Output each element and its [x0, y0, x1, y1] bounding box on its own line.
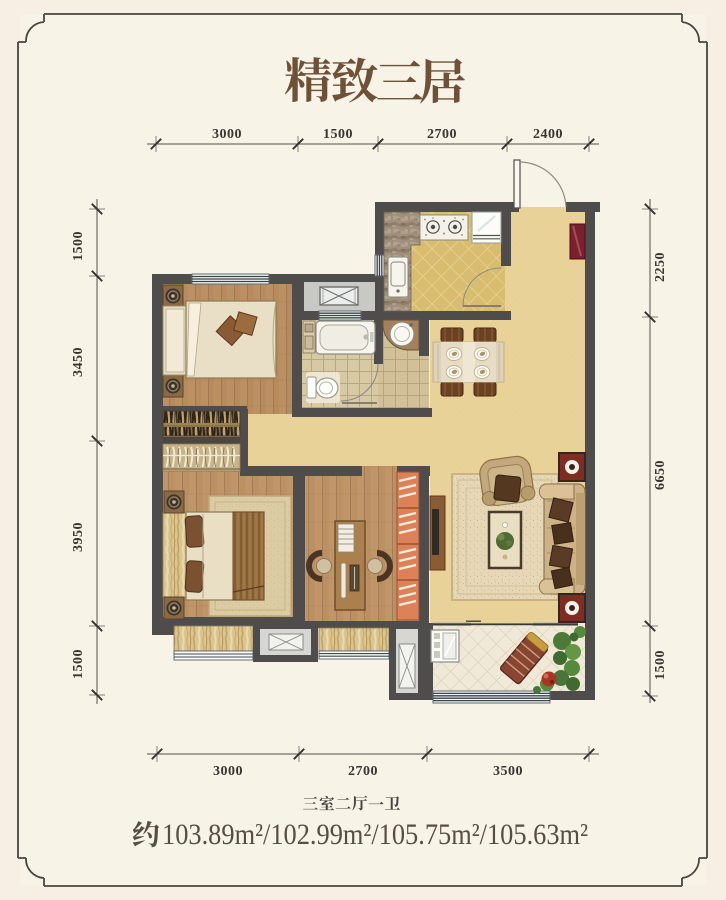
svg-text:1500: 1500 [653, 650, 668, 680]
svg-text:3500: 3500 [493, 764, 523, 779]
svg-text:6650: 6650 [653, 460, 668, 490]
svg-text:2250: 2250 [653, 252, 668, 282]
svg-text:3000: 3000 [212, 127, 242, 142]
svg-text:1500: 1500 [323, 127, 353, 142]
svg-text:3000: 3000 [213, 764, 243, 779]
svg-text:2700: 2700 [427, 127, 457, 142]
svg-text:3450: 3450 [71, 347, 86, 377]
svg-text:103.89m²/102.99m²/105.75m²/105: 103.89m²/102.99m²/105.75m²/105.63m² [162, 818, 588, 851]
svg-text:3950: 3950 [71, 522, 86, 552]
svg-text:1500: 1500 [71, 649, 86, 679]
svg-text:2400: 2400 [533, 127, 563, 142]
svg-text:2700: 2700 [348, 764, 378, 779]
svg-text:1500: 1500 [71, 231, 86, 261]
